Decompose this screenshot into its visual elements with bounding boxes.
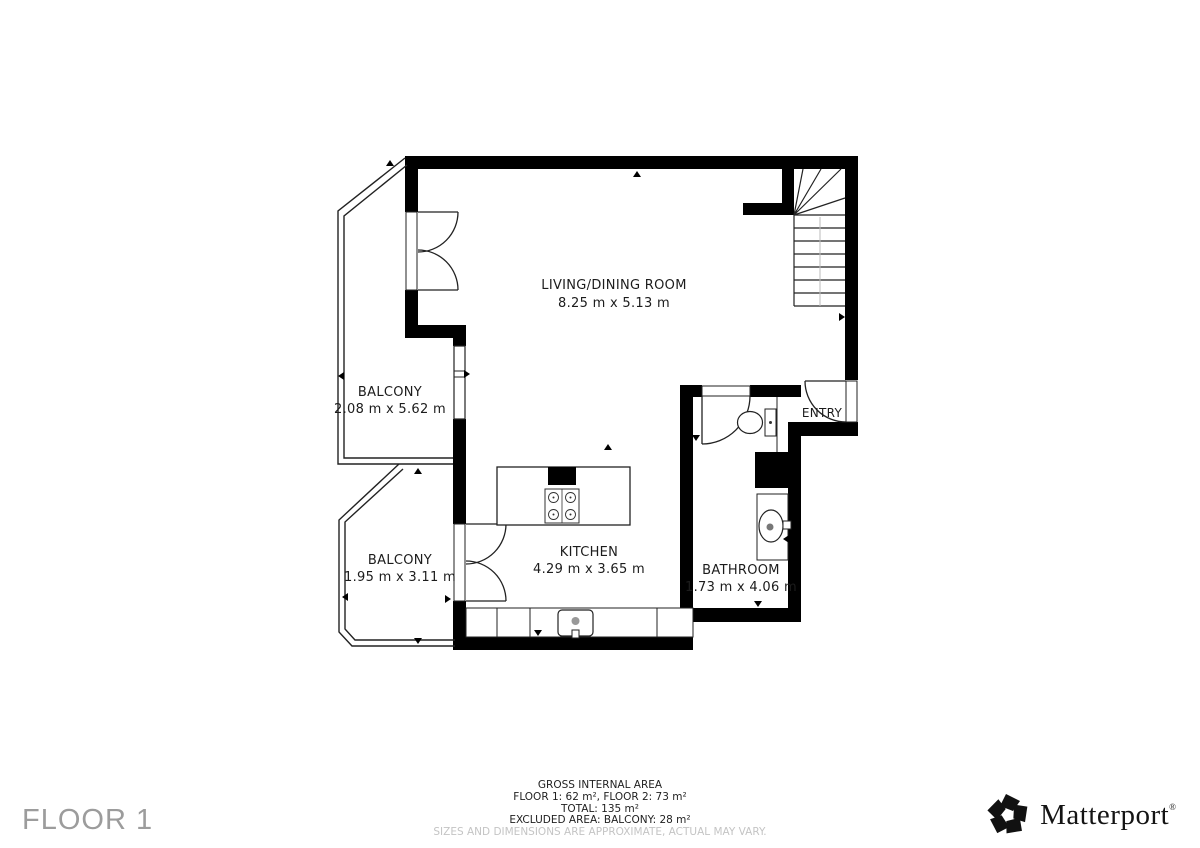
dims-balcony-1: 2.08 m x 5.62 m [334, 402, 446, 417]
balcony1-outer-wall [338, 158, 453, 464]
dims-kitchen: 4.29 m x 3.65 m [533, 562, 645, 577]
label-balcony-1: BALCONY [358, 385, 422, 400]
label-entry: ENTRY [802, 406, 843, 420]
wall-bath-bottom [693, 608, 801, 622]
door-living-top-leaf [418, 212, 458, 252]
stair-winders [794, 169, 845, 215]
matterport-pinwheel-icon [985, 792, 1031, 838]
door-living-bottom-leaf [418, 250, 458, 290]
wall-upperwest-b [405, 290, 418, 326]
label-living-dining: LIVING/DINING ROOM [541, 278, 686, 293]
toilet-icon [738, 409, 777, 436]
label-bathroom: BATHROOM [702, 563, 780, 578]
doorframe-bathroom [702, 386, 750, 396]
floorplan-drawing: LIVING/DINING ROOM 8.25 m x 5.13 m BALCO… [0, 0, 1200, 848]
kitchen-counter [466, 608, 693, 638]
bathroom-sink-icon [757, 494, 791, 560]
wall-west-c [453, 601, 466, 650]
island-appliance-block [548, 467, 576, 485]
kitchen-island [497, 467, 630, 525]
bathroom-fixtures [738, 397, 792, 560]
matterport-wordmark-text: Matterport [1040, 799, 1169, 831]
doorframe-kitchen-balcony [454, 524, 465, 601]
doorframe-living-balcony [406, 212, 417, 290]
wall-upperwest-a [405, 156, 418, 212]
service-shaft [755, 452, 788, 488]
window-living-balcony [454, 346, 465, 419]
matterport-logo: Matterport® [985, 790, 1176, 840]
wall-right-upper [845, 169, 858, 380]
wall-jog [405, 325, 466, 338]
wall-entry-corner [788, 422, 858, 436]
dims-balcony-2: 1.95 m x 3.11 m [344, 570, 456, 585]
area-summary: GROSS INTERNAL AREA FLOOR 1: 62 m², FLOO… [433, 780, 766, 839]
wall-stair-stub [743, 203, 794, 215]
wall-bath-top-left [680, 385, 702, 397]
matterport-wordmark: Matterport® [1040, 799, 1176, 832]
wall-kitchen-bottom [455, 637, 693, 650]
dims-bathroom: 1.73 m x 4.06 m [685, 580, 797, 595]
wall-top [405, 156, 858, 169]
registered-mark: ® [1169, 802, 1176, 812]
label-balcony-2: BALCONY [368, 553, 432, 568]
door-kitchen-bottom-leaf [466, 561, 506, 601]
door-kitchen-top-leaf [466, 524, 506, 564]
staircase [794, 169, 845, 306]
dims-living-dining: 8.25 m x 5.13 m [558, 296, 670, 311]
floorplan-page: { "floor_label": "FLOOR 1", "rooms": [ {… [0, 0, 1200, 848]
floor-title: FLOOR 1 [22, 804, 153, 837]
doorframe-entry [846, 381, 857, 422]
stove-icon [545, 489, 579, 523]
label-kitchen: KITCHEN [560, 545, 618, 560]
kitchen-sink-icon [558, 610, 593, 638]
area-summary-disclaimer: SIZES AND DIMENSIONS ARE APPROXIMATE, AC… [433, 827, 766, 839]
area-summary-floors: FLOOR 1: 62 m², FLOOR 2: 73 m² [433, 792, 766, 804]
